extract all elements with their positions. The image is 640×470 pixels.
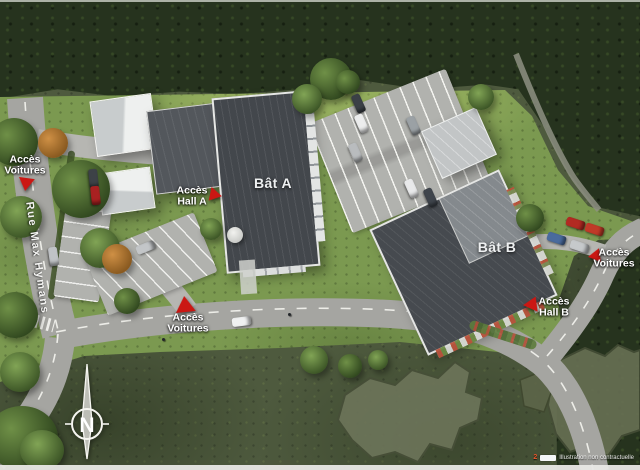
tree: [300, 346, 328, 374]
site-plan-illustration: Rue Max Hymans Accès Voitures Accès Hall…: [0, 0, 640, 470]
tree: [338, 354, 362, 378]
tree: [200, 218, 222, 240]
access-hall-b-label: Accès Hall B: [533, 297, 575, 320]
dirt-path: [516, 54, 599, 210]
tree: [368, 350, 388, 370]
access-hall-a-label: Accès Hall A: [171, 186, 213, 209]
car: [90, 186, 101, 206]
compass-icon: N: [60, 362, 114, 462]
building-b-label: Bât B: [478, 239, 517, 255]
disclaimer-text: Illustration non contractuelle: [559, 455, 634, 461]
tree-autumn: [38, 128, 68, 158]
tree: [336, 70, 360, 94]
tree: [516, 204, 544, 232]
brand-logo: [540, 455, 556, 461]
pedestrian: [288, 313, 291, 316]
tree: [20, 430, 64, 470]
tree: [0, 352, 40, 392]
building-a-label: Bât A: [254, 175, 292, 191]
compass-north-letter: N: [79, 414, 94, 437]
tree: [292, 84, 322, 114]
tree: [114, 288, 140, 314]
footer-watermark: 2 Illustration non contractuelle: [533, 454, 634, 461]
walkway: [239, 259, 257, 294]
access-marker-icon: [17, 177, 35, 192]
page-edge-bottom: [0, 465, 640, 470]
access-cars-bottom-label: Accès Voitures: [160, 313, 216, 336]
tree-autumn: [102, 244, 132, 274]
pedestrian: [162, 338, 165, 341]
gazebo: [227, 227, 243, 243]
page-number: 2: [533, 454, 537, 461]
access-marker-icon: [174, 295, 196, 313]
tree: [52, 160, 110, 218]
page-edge-top: [0, 0, 640, 2]
access-cars-left-label: Accès Voitures: [0, 155, 52, 178]
tree: [468, 84, 494, 110]
access-cars-right-label: Accès Voitures: [590, 248, 638, 271]
